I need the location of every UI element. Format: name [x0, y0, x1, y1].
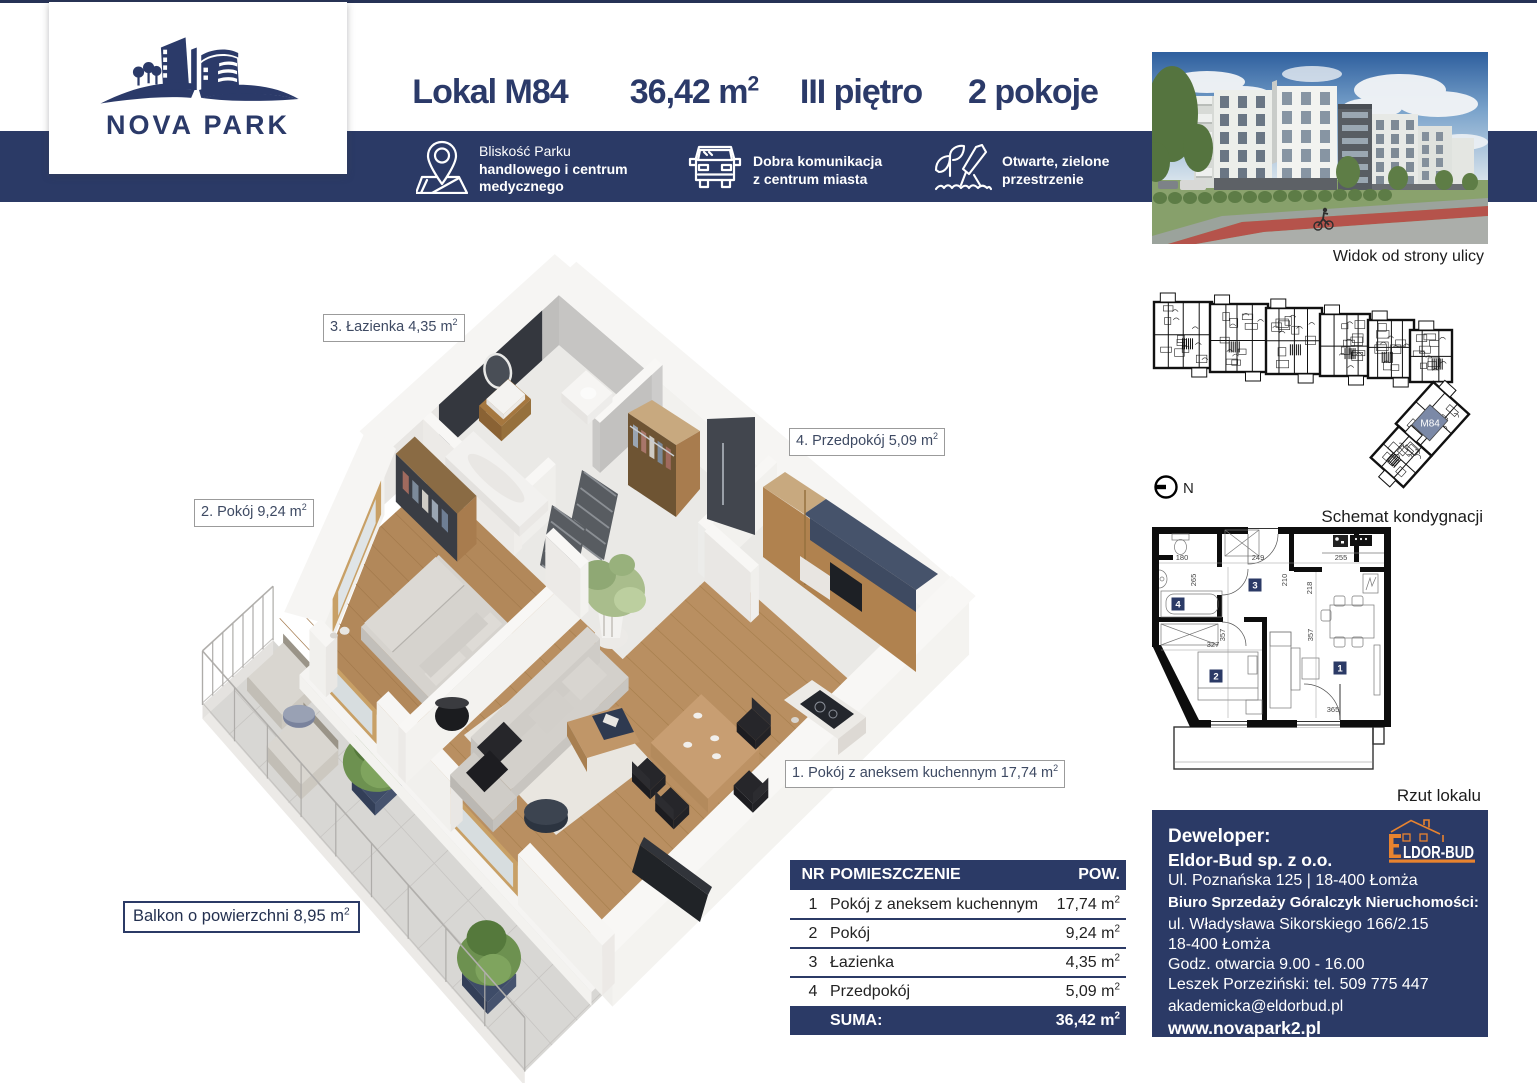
svg-text:LDOR-BUD: LDOR-BUD: [1403, 842, 1474, 862]
